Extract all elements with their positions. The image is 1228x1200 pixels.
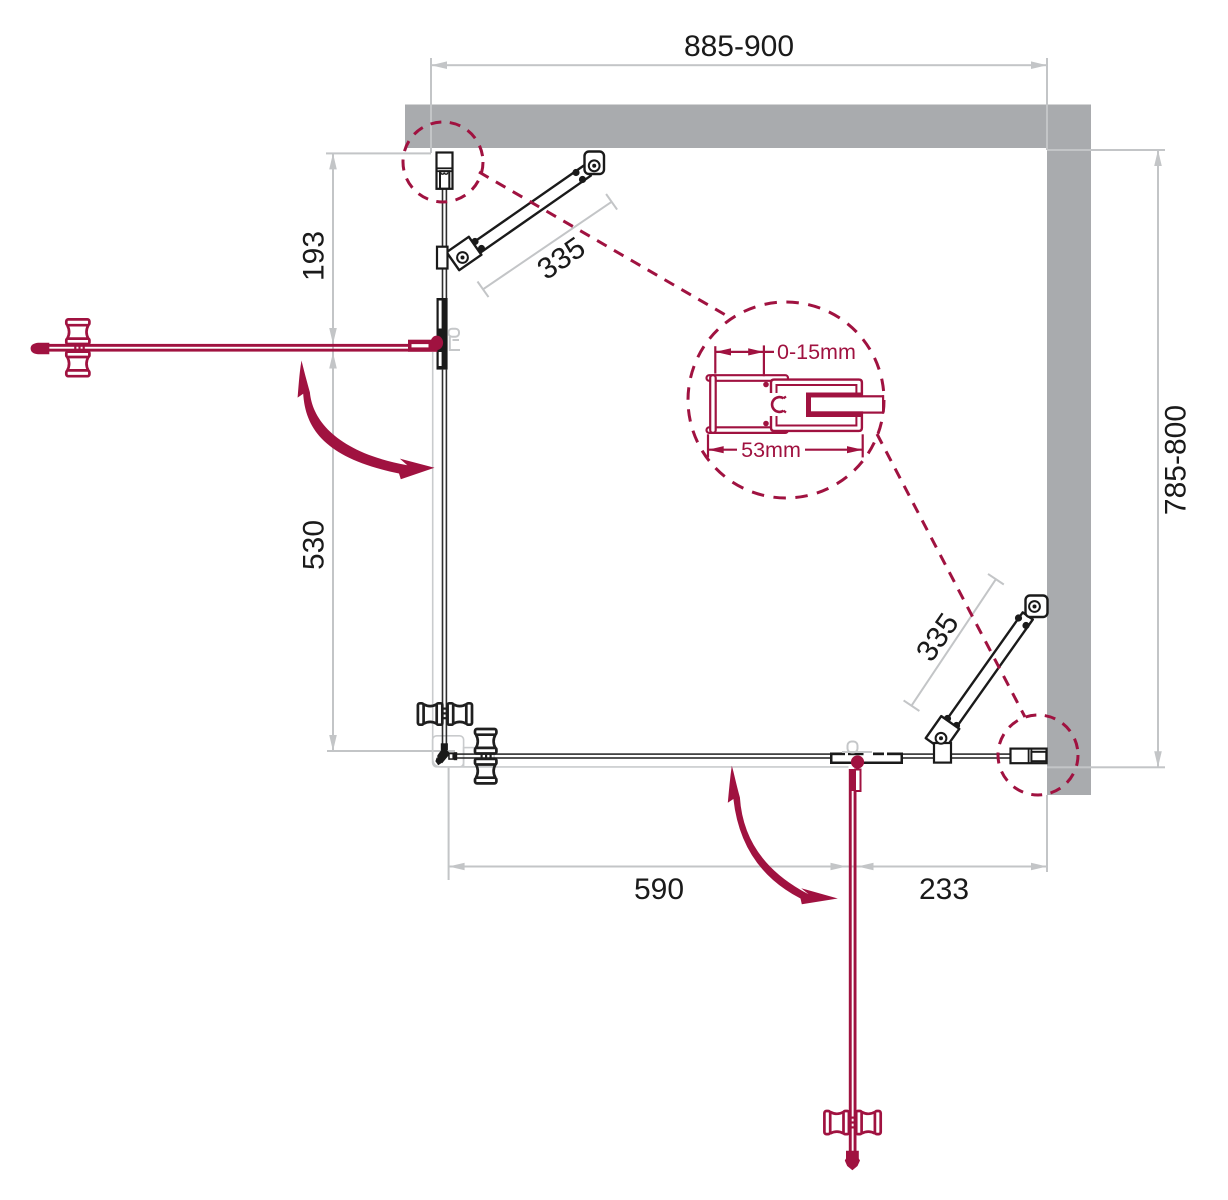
svg-text:590: 590: [634, 873, 684, 906]
svg-text:233: 233: [919, 873, 969, 906]
svg-text:885-900: 885-900: [684, 30, 794, 63]
svg-text:0-15mm: 0-15mm: [777, 340, 856, 364]
svg-text:785-800: 785-800: [1160, 405, 1193, 515]
svg-text:530: 530: [298, 520, 331, 570]
svg-text:193: 193: [298, 231, 331, 281]
svg-text:53mm: 53mm: [741, 438, 801, 462]
